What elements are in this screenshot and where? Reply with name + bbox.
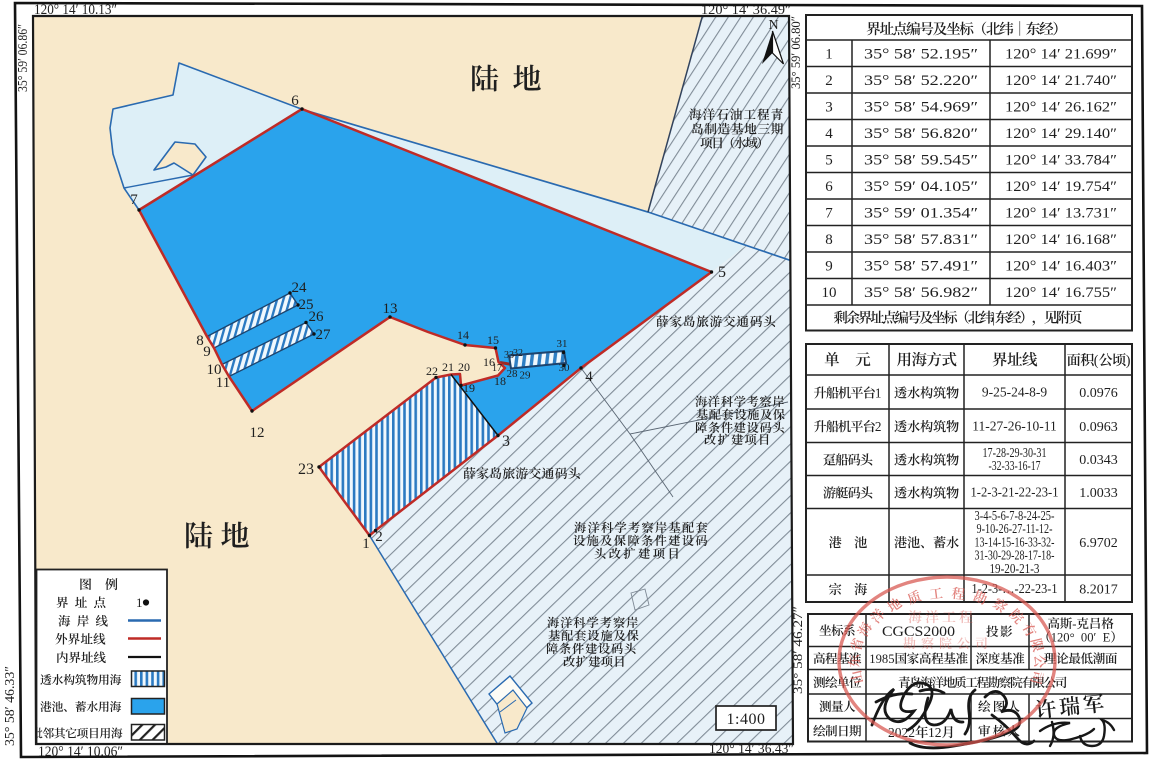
svg-text:4: 4 <box>825 126 833 142</box>
svg-text:1:400: 1:400 <box>727 711 766 728</box>
svg-text:120° 14′ 13.731″: 120° 14′ 13.731″ <box>1005 206 1117 222</box>
svg-text:18: 18 <box>494 374 506 388</box>
svg-text:1: 1 <box>362 536 370 552</box>
svg-text:3: 3 <box>825 100 833 116</box>
svg-text:35° 59′ 06.80″: 35° 59′ 06.80″ <box>789 16 803 89</box>
svg-text:1985: 1985 <box>869 652 894 666</box>
svg-text:19: 19 <box>463 381 475 395</box>
svg-text:2: 2 <box>875 419 882 434</box>
svg-text:-: - <box>1072 617 1076 631</box>
svg-text:1: 1 <box>825 47 833 63</box>
svg-text:35° 59′ 01.354″: 35° 59′ 01.354″ <box>864 206 978 222</box>
svg-text:-32-33-16-17: -32-33-16-17 <box>989 458 1041 473</box>
svg-text:15: 15 <box>487 333 499 347</box>
svg-text:20: 20 <box>458 360 470 374</box>
svg-text:13: 13 <box>383 301 398 317</box>
svg-text:10: 10 <box>822 285 837 301</box>
svg-text:35° 58′ 59.545″: 35° 58′ 59.545″ <box>864 153 978 169</box>
svg-text:120° 14′ 21.740″: 120° 14′ 21.740″ <box>1005 73 1117 89</box>
svg-text:|: | <box>992 311 995 327</box>
svg-text:5: 5 <box>718 264 726 281</box>
svg-text:00′: 00′ <box>1081 631 1097 645</box>
svg-text:33: 33 <box>504 350 514 361</box>
svg-text:9: 9 <box>203 344 211 360</box>
svg-text:6: 6 <box>291 93 299 109</box>
svg-text:120° 14′ 26.162″: 120° 14′ 26.162″ <box>1005 100 1117 116</box>
svg-text:3: 3 <box>502 433 510 450</box>
svg-text:35° 58′ 56.982″: 35° 58′ 56.982″ <box>864 285 978 301</box>
svg-text:24: 24 <box>292 280 308 296</box>
svg-text:1: 1 <box>136 595 143 610</box>
svg-text:6: 6 <box>825 179 833 195</box>
svg-text:120° 14′ 16.168″: 120° 14′ 16.168″ <box>1005 232 1117 248</box>
svg-text:23: 23 <box>298 461 314 478</box>
svg-text:7: 7 <box>130 192 138 208</box>
svg-text:35° 58′ 56.820″: 35° 58′ 56.820″ <box>864 126 978 142</box>
svg-text:29: 29 <box>520 370 532 382</box>
svg-text:5: 5 <box>825 153 833 169</box>
svg-text:35° 59′ 06.86″: 35° 59′ 06.86″ <box>15 24 30 92</box>
svg-text:120° 14′ 16.755″: 120° 14′ 16.755″ <box>1005 285 1117 301</box>
svg-text:1: 1 <box>875 386 882 401</box>
svg-text:120° 14′ 19.754″: 120° 14′ 19.754″ <box>1005 179 1117 195</box>
svg-text:35° 58′ 54.969″: 35° 58′ 54.969″ <box>864 100 978 116</box>
svg-text:22: 22 <box>426 364 438 378</box>
svg-text:120°: 120° <box>1051 631 1075 645</box>
svg-text:28: 28 <box>507 368 519 380</box>
svg-text:2: 2 <box>375 529 383 545</box>
svg-text:CGCS2000: CGCS2000 <box>882 624 955 640</box>
svg-text:14: 14 <box>457 328 469 342</box>
svg-text:1.0033: 1.0033 <box>1079 486 1118 501</box>
svg-text:35° 59′ 04.105″: 35° 59′ 04.105″ <box>864 179 978 195</box>
svg-text:0.0343: 0.0343 <box>1079 453 1118 468</box>
svg-text:4: 4 <box>585 369 593 385</box>
svg-text:9-25-24-8-9: 9-25-24-8-9 <box>982 385 1047 400</box>
svg-text:35° 58′ 52.220″: 35° 58′ 52.220″ <box>864 73 978 89</box>
svg-text:35° 58′ 46.27″: 35° 58′ 46.27″ <box>791 606 805 694</box>
svg-text:): ) <box>1126 353 1131 369</box>
svg-text:12: 12 <box>250 425 265 441</box>
svg-text:(: ( <box>1094 353 1099 369</box>
svg-text:8: 8 <box>825 232 833 248</box>
svg-text:7: 7 <box>825 206 833 222</box>
svg-text:2: 2 <box>825 73 833 89</box>
svg-text:27: 27 <box>316 327 332 343</box>
svg-text:11: 11 <box>216 375 230 391</box>
svg-text:32: 32 <box>513 348 523 359</box>
svg-text:E: E <box>1103 631 1111 645</box>
svg-text:26: 26 <box>309 309 325 325</box>
svg-text:120° 14′ 33.784″: 120° 14′ 33.784″ <box>1005 153 1117 169</box>
svg-text:19-20-21-3: 19-20-21-3 <box>990 561 1040 576</box>
svg-text:12: 12 <box>928 725 942 740</box>
svg-text:35° 58′ 52.195″: 35° 58′ 52.195″ <box>864 47 978 63</box>
svg-text:21: 21 <box>442 360 454 374</box>
svg-text:8.2017: 8.2017 <box>1079 583 1118 598</box>
svg-text:6.9702: 6.9702 <box>1079 536 1118 551</box>
svg-text:0.0976: 0.0976 <box>1079 386 1118 401</box>
svg-text:35° 58′ 57.491″: 35° 58′ 57.491″ <box>864 259 978 275</box>
svg-text:9: 9 <box>825 259 833 275</box>
svg-text:120° 14′ 29.140″: 120° 14′ 29.140″ <box>1005 126 1117 142</box>
svg-text:35° 58′ 57.831″: 35° 58′ 57.831″ <box>864 232 978 248</box>
svg-text:120° 14′ 21.699″: 120° 14′ 21.699″ <box>1005 47 1117 63</box>
svg-text:30: 30 <box>559 362 571 374</box>
svg-text:0.0963: 0.0963 <box>1079 420 1118 435</box>
svg-text:120° 14′ 16.403″: 120° 14′ 16.403″ <box>1005 259 1117 275</box>
svg-text:1-2-3-21-22-23-1: 1-2-3-21-22-23-1 <box>971 485 1059 500</box>
svg-text:11-27-26-10-11: 11-27-26-10-11 <box>972 418 1056 433</box>
svg-text:35° 58′ 46.33″: 35° 58′ 46.33″ <box>2 666 17 746</box>
svg-text:31: 31 <box>557 338 568 350</box>
svg-text:N: N <box>768 18 778 33</box>
svg-text:17: 17 <box>492 363 502 374</box>
